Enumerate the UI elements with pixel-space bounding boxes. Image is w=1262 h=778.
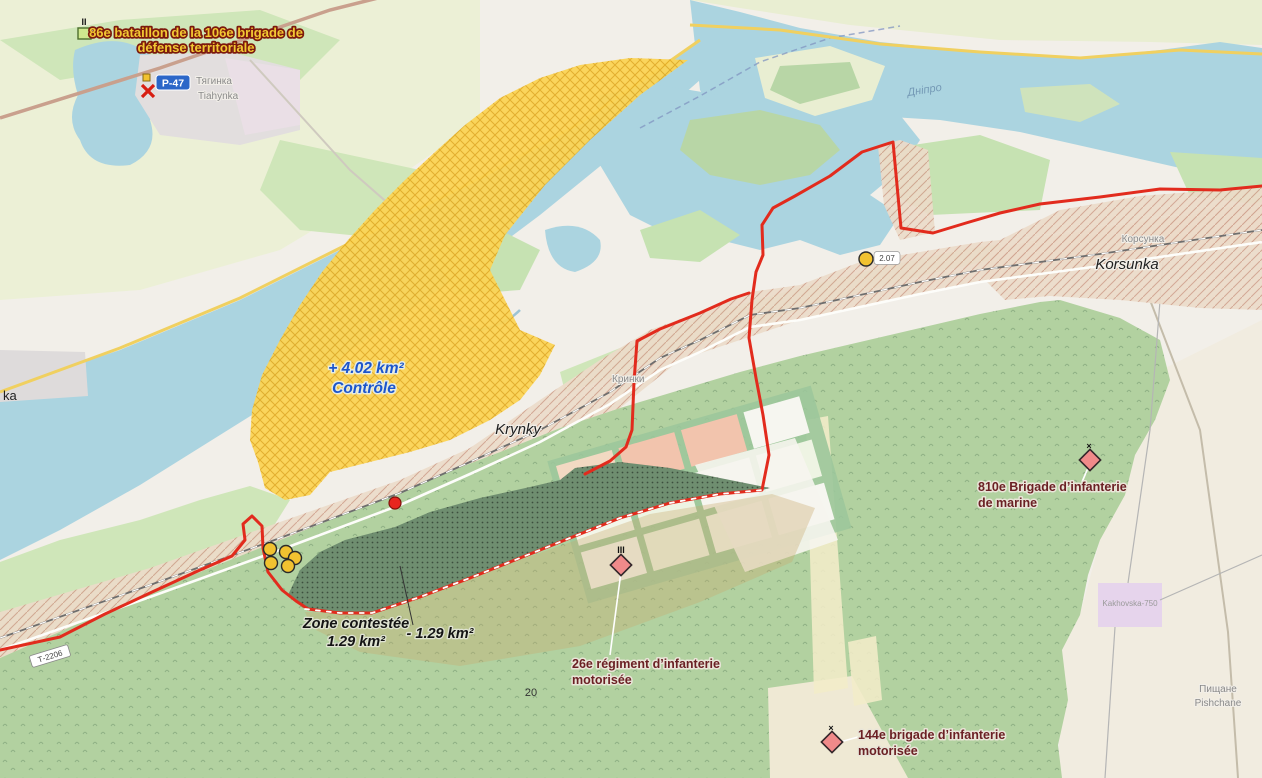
label-144e-line1: 144e brigade d’infanterie: [858, 728, 1005, 742]
place-korsunka-cyr: Корсунка: [1122, 234, 1165, 245]
label-control-line1: + 4.02 km²: [328, 360, 404, 377]
place-ka: ka: [3, 388, 18, 403]
place-substation: Kakhovska-750: [1102, 599, 1158, 608]
echelon-810e: ×: [1086, 441, 1091, 451]
echelon-86e: II: [81, 17, 86, 27]
echelon-26e: III: [617, 545, 625, 555]
event-dot-4[interactable]: [265, 557, 278, 570]
road-shield-p47[interactable]: P-47: [156, 75, 190, 90]
event-dot-5[interactable]: [282, 560, 295, 573]
firebreak-strip2: [848, 636, 882, 706]
label-contested-line2: 1.29 km²: [327, 634, 386, 650]
place-tiahynka: Tiahynka: [198, 91, 239, 102]
label-contested-line1: Zone contestée: [302, 616, 409, 632]
label-26e-line2: motorisée: [572, 673, 632, 687]
label-810e-line2: de marine: [978, 496, 1037, 510]
place-krynky-cyr: Кринки: [612, 374, 644, 385]
event-dot-red[interactable]: [389, 497, 401, 509]
label-26e-line1: 26e régiment d’infanterie: [572, 657, 720, 671]
label-86e-line1: 86e bataillon de la 106e brigade de: [89, 25, 303, 40]
place-pishchane-cyr: Пищане: [1199, 684, 1237, 695]
label-control-line2: Contrôle: [332, 380, 396, 397]
incident-icon[interactable]: [143, 74, 150, 81]
place-korsunka: Korsunka: [1095, 256, 1158, 273]
place-krynky: Krynky: [495, 421, 542, 438]
road-shield-p47-label: P-47: [162, 78, 184, 90]
place-pishchane: Pishchane: [1195, 698, 1242, 709]
place-tiahynka-cyr: Тягинка: [196, 76, 232, 87]
event-dot-dated[interactable]: 2.07: [859, 252, 900, 267]
event-dot-1[interactable]: [264, 543, 277, 556]
map-canvas[interactable]: II P-47 Т-2206 2.07 III: [0, 0, 1262, 778]
label-810e-line1: 810e Brigade d’infanterie: [978, 480, 1127, 494]
label-86e-line2: défense territoriale: [137, 40, 254, 55]
echelon-144e: ×: [828, 723, 833, 733]
event-dot-date-label: 2.07: [879, 254, 895, 263]
forest-parcel-number: 20: [525, 687, 537, 699]
label-loss: - 1.29 km²: [407, 626, 475, 642]
label-144e-line2: motorisée: [858, 744, 918, 758]
